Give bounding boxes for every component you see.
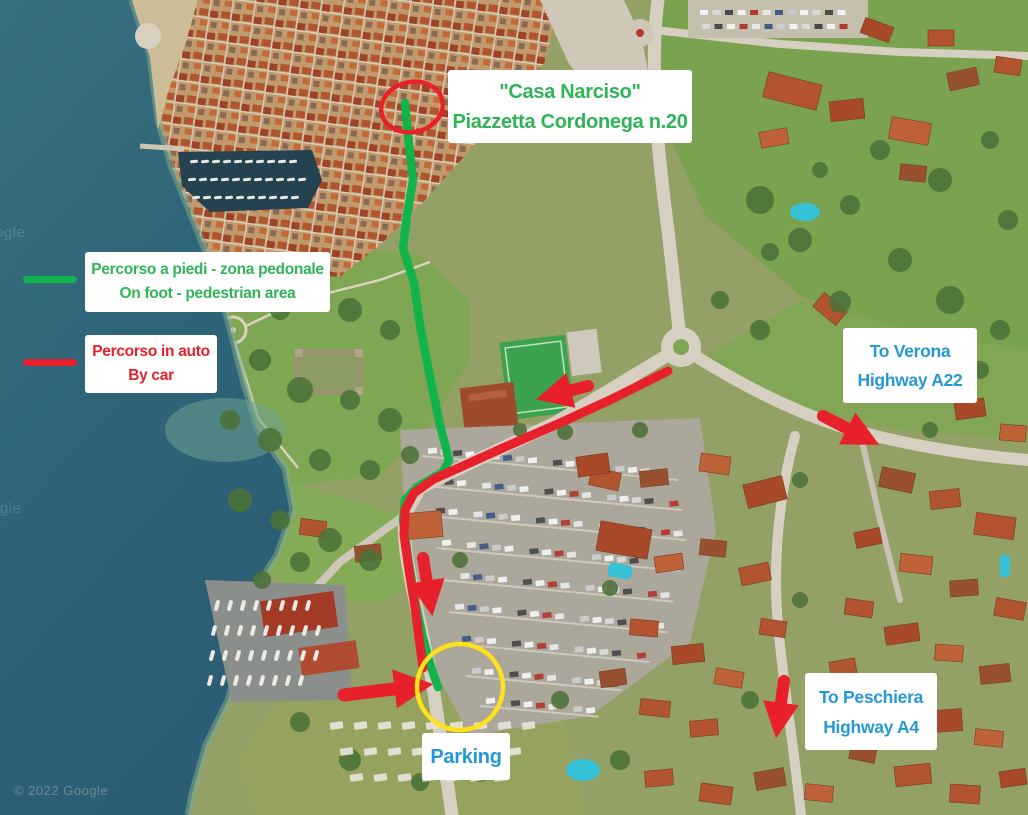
destination-label-line1: "Casa Narciso"	[448, 77, 692, 107]
verona-direction-label: To Verona Highway A22	[843, 328, 977, 403]
arrow-down-on-route	[423, 558, 429, 595]
verona-label-line1: To Verona	[843, 337, 977, 366]
marina-boatyard	[205, 580, 360, 702]
peschiera-label-line2: Highway A4	[805, 712, 937, 742]
parking-label-text: Parking	[422, 746, 510, 768]
walking-legend-line1: Percorso a piedi - zona pedonale	[85, 258, 330, 282]
walking-legend-line2: On foot - pedestrian area	[85, 282, 330, 306]
arrow-left-on-road	[557, 386, 588, 394]
destination-label-line2: Piazzetta Cordonega n.20	[448, 107, 692, 137]
peschiera-direction-label: To Peschiera Highway A4	[805, 673, 937, 750]
driving-route-legend-swatch	[23, 359, 77, 366]
walking-route-legend-swatch	[23, 276, 77, 283]
small-parking-top	[688, 0, 868, 38]
verona-label-line2: Highway A22	[843, 366, 977, 395]
peschiera-label-line1: To Peschiera	[805, 682, 937, 712]
annotated-satellite-map: "Casa Narciso" Piazzetta Cordonega n.20 …	[0, 0, 1028, 815]
parking-label: Parking	[422, 733, 510, 780]
destination-label: "Casa Narciso" Piazzetta Cordonega n.20	[448, 70, 692, 143]
walking-route-legend: Percorso a piedi - zona pedonale On foot…	[85, 252, 330, 312]
driving-route-legend: Percorso in auto By car	[85, 335, 217, 393]
arrow-right-to-parking	[344, 687, 410, 695]
driving-legend-line2: By car	[85, 364, 217, 388]
arrow-to-peschiera	[779, 681, 784, 717]
driving-legend-line1: Percorso in auto	[85, 340, 217, 364]
